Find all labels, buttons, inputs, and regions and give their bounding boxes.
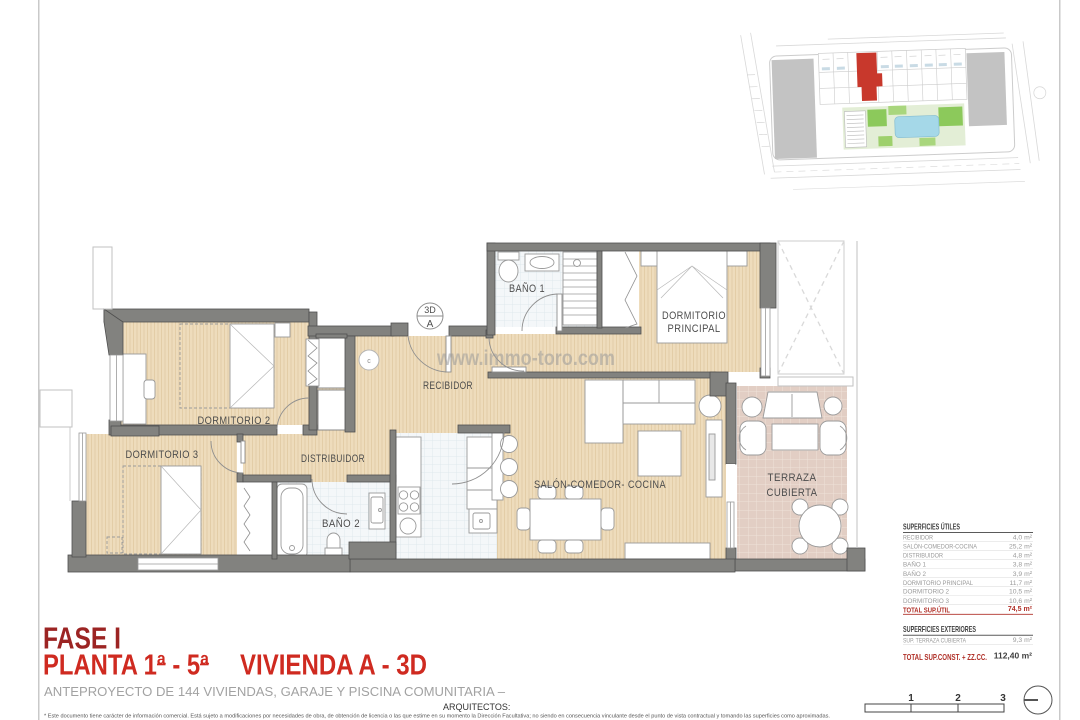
svg-text:4,0 m²: 4,0 m² (1013, 534, 1033, 541)
svg-text:RECIBIDOR: RECIBIDOR (423, 380, 473, 392)
svg-text:10,6 m²: 10,6 m² (1009, 598, 1033, 605)
svg-text:3: 3 (1000, 693, 1006, 704)
svg-text:RECIBIDOR: RECIBIDOR (903, 534, 933, 541)
svg-text:3D: 3D (424, 305, 436, 315)
svg-text:3,9 m²: 3,9 m² (1013, 571, 1033, 578)
svg-text:1: 1 (908, 693, 914, 704)
svg-text:DORMITORIO 3: DORMITORIO 3 (126, 449, 199, 461)
svg-text:DORMITORIO: DORMITORIO (662, 310, 726, 322)
svg-text:BAÑO 2: BAÑO 2 (322, 517, 360, 530)
svg-text:ANTEPROYECTO DE 144 VIVIENDAS,: ANTEPROYECTO DE 144 VIVIENDAS, GARAJE Y … (44, 685, 505, 699)
svg-text:TOTAL SUP.ÚTIL: TOTAL SUP.ÚTIL (903, 605, 950, 614)
svg-text:DORMITORIO 3: DORMITORIO 3 (903, 598, 949, 605)
svg-text:PLANTA 1ª - 5ª: PLANTA 1ª - 5ª (43, 650, 209, 682)
svg-text:VIVIENDA A - 3D: VIVIENDA A - 3D (240, 650, 427, 682)
svg-text:www.immo-toro.com: www.immo-toro.com (436, 347, 615, 370)
svg-text:SUP. TERRAZA CUBIERTA: SUP. TERRAZA CUBIERTA (903, 637, 966, 644)
svg-text:PRINCIPAL: PRINCIPAL (668, 323, 721, 335)
svg-text:3,8 m²: 3,8 m² (1013, 562, 1033, 569)
svg-text:11,7 m²: 11,7 m² (1009, 580, 1032, 587)
svg-text:BAÑO 1: BAÑO 1 (509, 282, 545, 295)
svg-text:TOTAL SUP.CONST. + ZZ.CC.: TOTAL SUP.CONST. + ZZ.CC. (903, 652, 987, 662)
svg-text:* Este documento tiene carácte: * Este documento tiene carácter de infor… (44, 714, 830, 720)
svg-text:A: A (427, 319, 434, 330)
svg-text:DISTRIBUIDOR: DISTRIBUIDOR (903, 553, 943, 560)
svg-text:DORMITORIO PRINCIPAL: DORMITORIO PRINCIPAL (903, 580, 973, 587)
svg-text:DISTRIBUIDOR: DISTRIBUIDOR (301, 453, 365, 465)
svg-text:10,5 m²: 10,5 m² (1009, 589, 1033, 596)
svg-text:25,2 m²: 25,2 m² (1009, 544, 1033, 551)
svg-text:SUPERFICIES ÚTILES: SUPERFICIES ÚTILES (903, 521, 960, 532)
svg-text:4,8 m²: 4,8 m² (1013, 553, 1033, 560)
svg-text:DORMITORIO 2: DORMITORIO 2 (903, 589, 949, 596)
svg-text:SALÓN-COMEDOR- COCINA: SALÓN-COMEDOR- COCINA (534, 478, 666, 491)
svg-text:74,5 m²: 74,5 m² (1008, 606, 1033, 613)
svg-text:ARQUITECTOS:: ARQUITECTOS: (443, 702, 510, 712)
svg-text:9,3 m²: 9,3 m² (1013, 637, 1033, 644)
svg-text:c: c (367, 358, 371, 365)
svg-text:2: 2 (955, 693, 961, 704)
svg-text:112,40 m²: 112,40 m² (994, 651, 1032, 661)
svg-text:DORMITORIO 2: DORMITORIO 2 (198, 415, 271, 427)
svg-text:BAÑO 2: BAÑO 2 (903, 569, 926, 578)
svg-text:CUBIERTA: CUBIERTA (767, 487, 818, 499)
svg-text:TERRAZA: TERRAZA (768, 472, 817, 484)
svg-text:SUPERFICIES EXTERIORES: SUPERFICIES EXTERIORES (903, 624, 976, 634)
svg-text:SALÓN-COMEDOR-COCINA: SALÓN-COMEDOR-COCINA (903, 542, 977, 551)
svg-text:BAÑO 1: BAÑO 1 (903, 560, 926, 569)
